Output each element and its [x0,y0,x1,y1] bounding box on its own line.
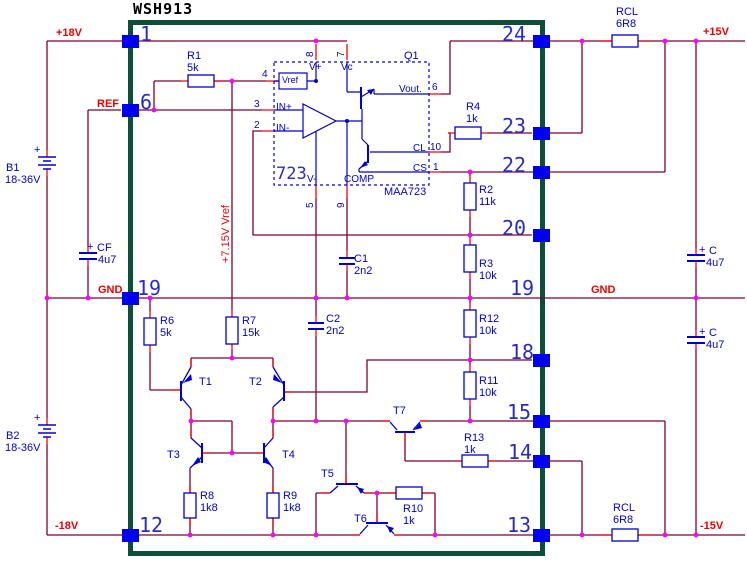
value-C-lower: 4u7 [706,340,724,351]
rail-label-gnd-right: GND [591,285,615,296]
resistor-R6 [144,318,156,345]
pad-1 [122,35,139,48]
resistor-R3 [464,245,476,272]
pad-12 [122,529,139,542]
pin-number-15: 15 [507,402,531,422]
value-R3: 10k [479,271,497,282]
plus-CF: + [87,242,93,253]
ic-inn-label: IN- [276,124,289,134]
resistor-RCL-bottom [612,529,638,541]
capacitor-C1 [339,258,355,264]
value-CF: 4u7 [98,255,116,266]
resistor-R1 [188,75,214,87]
label-RCL-bottom: RCL [613,503,635,514]
module-border [131,23,543,554]
label-R13: R13 [464,433,484,444]
label-R3: R3 [479,259,493,270]
value-B2: 18-36V [5,443,40,454]
label-C1: C1 [354,254,368,265]
value-R2: 11k [479,197,496,208]
label-T6: T6 [354,514,367,525]
pad-24 [533,35,550,48]
label-T7: T7 [393,406,406,417]
resistor-R11 [464,372,476,399]
label-C2: C2 [326,314,340,325]
pad-20 [533,229,550,242]
value-R10: 1k [403,516,415,527]
ic-pin6: 6 [432,83,438,93]
pin-number-14: 14 [508,442,532,462]
label-T3: T3 [167,450,180,461]
label-T5: T5 [321,469,334,480]
battery-B1 [38,157,56,169]
ic-inp-label: IN+ [276,103,292,113]
plus-B1: + [34,145,40,156]
value-R12: 10k [479,326,497,337]
ic-cl-label: CL [413,144,426,154]
ic-comp-label: COMP [344,175,374,185]
resistor-R2 [464,183,476,210]
opamp-triangle [303,104,336,138]
label-T1: T1 [199,377,212,388]
pin-number-13: 13 [507,515,531,535]
ic-q1-label: Q1 [404,51,419,62]
transistor-T1 [181,367,191,409]
value-C1: 2n2 [354,266,372,277]
resistor-R13 [462,455,488,467]
value-C-upper: 4u7 [706,258,724,269]
pin-number-24: 24 [502,24,526,44]
resistor-RCL-top [612,35,638,47]
rail-label-gnd-left: GND [98,285,122,296]
ic-vminus-label: V- [307,175,316,185]
pin-number-19-right: 19 [510,278,534,298]
rail-label-plus18: +18V [56,28,82,39]
ic-pin3: 3 [254,100,260,110]
value-R4: 1k [466,114,478,125]
resistor-R9 [267,493,279,518]
ic-pin1: 1 [433,163,439,173]
pad-6 [122,104,139,117]
ic-vout-label: Vout. [399,85,422,95]
resistor-R10 [396,487,422,499]
rail-label-minus15: -15V [700,521,723,532]
battery-B2 [38,425,56,437]
pad-23 [533,127,550,140]
ic-pin9: 9 [337,202,347,208]
ic-vref-label: Vref [282,76,298,85]
value-R11: 10k [479,388,497,399]
value-RCL-bottom: 6R8 [613,515,633,526]
ic-pin8: 8 [306,51,316,57]
label-R2: R2 [479,185,493,196]
label-R8: R8 [200,491,214,502]
plus-C-lower: + [699,327,705,338]
plus-C-upper: + [699,245,705,256]
ic-cs-label: CS [413,164,427,174]
label-B2: B2 [6,431,19,442]
value-B1: 18-36V [5,175,40,186]
resistor-R4 [455,127,481,139]
label-T4: T4 [282,450,295,461]
ic-pin5: 5 [306,202,316,208]
ic-pin10: 10 [430,143,441,153]
resistor-R7 [226,317,238,344]
capacitor-CF [79,253,97,259]
pin-number-6: 6 [140,92,152,112]
label-R6: R6 [160,316,174,327]
ic-pin2: 2 [254,121,260,131]
pin-number-20: 20 [502,218,526,238]
ic-vc-label: Vc [341,63,353,73]
value-R6: 5k [160,328,172,339]
pad-22 [533,166,550,179]
ic-core-label: 723 [276,166,307,183]
label-R9: R9 [283,491,297,502]
pad-15 [533,415,550,428]
pin-number-23: 23 [502,116,526,136]
ic-pin4: 4 [262,70,268,80]
vref-line-label: +7.15V Vref [221,205,232,263]
value-R8: 1k8 [200,503,218,514]
pin-number-12: 12 [139,515,163,535]
transistor-T7 [390,422,420,432]
resistor-R8 [184,493,196,518]
label-R10: R10 [403,504,423,515]
rail-label-ref: REF [97,99,119,110]
pad-13 [533,529,550,542]
transistor-arrows [183,89,422,533]
rail-label-plus15: +15V [703,27,729,38]
pin-number-18: 18 [510,342,534,362]
value-R7: 15k [242,328,260,339]
transistor-T2 [273,367,284,407]
label-R11: R11 [479,376,498,387]
label-C-lower: C [709,328,717,339]
page-title: WSH913 [133,2,193,17]
value-R1: 5k [187,63,199,74]
ic-pin7: 7 [337,51,347,57]
label-R7: R7 [242,316,256,327]
value-R9: 1k8 [283,503,301,514]
label-R1: R1 [187,51,201,62]
value-R13: 1k [464,445,476,456]
label-CF: CF [97,243,112,254]
plus-B2: + [34,413,40,424]
value-C2: 2n2 [326,326,344,337]
label-RCL-top: RCL [616,7,638,18]
label-T2: T2 [249,377,262,388]
ic-vplus-label: V+ [309,63,322,73]
label-B1: B1 [6,163,19,174]
pin-number-19-left: 19 [137,278,161,298]
value-RCL-top: 6R8 [616,19,636,30]
rail-label-minus18: -18V [55,521,78,532]
label-R12: R12 [479,314,499,325]
pad-18 [533,354,550,367]
schematic-page: WSH913 +18V REF GND -18V +15V GND -15V +… [0,0,747,567]
pad-14 [533,455,550,468]
resistor-R12 [464,310,476,337]
pin-number-1: 1 [140,24,152,44]
label-R4: R4 [466,102,480,113]
capacitor-C2 [308,323,324,329]
label-C-upper: C [709,246,717,257]
pin-number-22: 22 [502,155,526,175]
ic-part-label: MAA723 [384,187,426,198]
